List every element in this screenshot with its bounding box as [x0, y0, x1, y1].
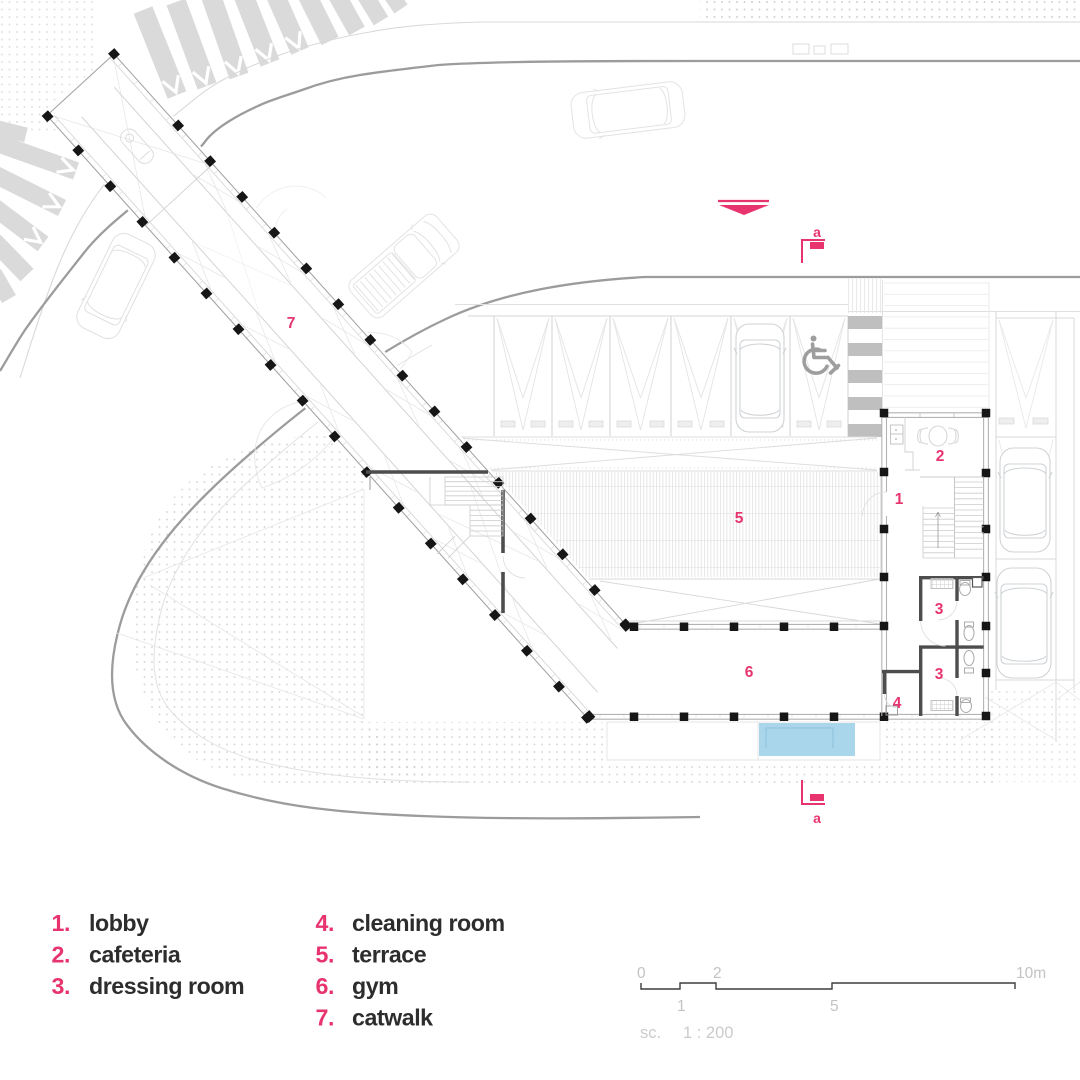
svg-text:4.: 4.	[316, 910, 334, 936]
svg-text:2: 2	[936, 448, 945, 465]
svg-text:terrace: terrace	[352, 942, 427, 968]
svg-text:cleaning room: cleaning room	[352, 910, 505, 936]
svg-text:7: 7	[287, 315, 296, 332]
svg-text:0: 0	[637, 965, 646, 982]
svg-text:10m: 10m	[1016, 965, 1046, 982]
svg-text:7.: 7.	[316, 1005, 334, 1031]
svg-text:2.: 2.	[52, 942, 70, 968]
svg-text:3: 3	[935, 601, 944, 618]
svg-text:5.: 5.	[316, 942, 334, 968]
svg-text:1.: 1.	[52, 910, 70, 936]
svg-text:1: 1	[895, 491, 904, 508]
svg-text:5: 5	[735, 510, 744, 527]
svg-text:6: 6	[745, 664, 754, 681]
svg-text:dressing room: dressing room	[89, 973, 244, 999]
svg-text:5: 5	[830, 998, 839, 1015]
svg-text:3.: 3.	[52, 973, 70, 999]
svg-text:gym: gym	[352, 973, 398, 999]
svg-text:sc.: sc.	[640, 1024, 661, 1042]
svg-text:1 : 200: 1 : 200	[683, 1024, 733, 1042]
svg-text:cafeteria: cafeteria	[89, 942, 182, 968]
svg-text:a: a	[813, 224, 821, 240]
svg-text:lobby: lobby	[89, 910, 149, 936]
svg-text:3: 3	[935, 666, 944, 683]
svg-text:a: a	[813, 810, 821, 826]
svg-text:4: 4	[893, 695, 902, 712]
svg-text:2: 2	[713, 965, 722, 982]
svg-text:1: 1	[677, 998, 686, 1015]
svg-text:catwalk: catwalk	[352, 1005, 433, 1031]
svg-text:6.: 6.	[316, 973, 334, 999]
